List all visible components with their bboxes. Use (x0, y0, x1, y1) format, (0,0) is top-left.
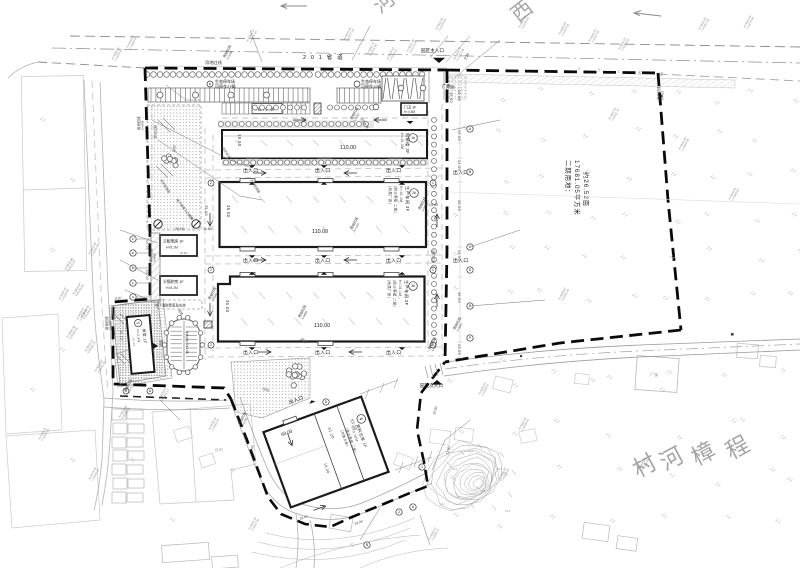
svg-text:X=7916: X=7916 (661, 90, 665, 100)
svg-text:X=2489: X=2489 (109, 320, 113, 330)
svg-text:(丙类厂房): (丙类厂房) (387, 280, 392, 298)
svg-text:出入口: 出入口 (315, 349, 330, 356)
svg-text:15.00: 15.00 (457, 90, 461, 101)
svg-text:2: 2 (398, 510, 400, 514)
svg-text:H≈15.1M: H≈15.1M (398, 280, 402, 297)
svg-text:二期用地：: 二期用地： (564, 160, 573, 196)
svg-text:1: 1 (432, 181, 434, 185)
svg-text:出入口: 出入口 (315, 257, 330, 264)
svg-text:出入口: 出入口 (386, 257, 401, 264)
svg-text:45.2: 45.2 (452, 467, 458, 471)
svg-text:H≈15.3M: H≈15.3M (400, 133, 404, 150)
svg-text:出入口: 出入口 (386, 167, 401, 174)
svg-text:13.00: 13.00 (457, 344, 461, 355)
svg-text:X=9085: X=9085 (153, 252, 157, 262)
svg-text:出入口: 出入口 (315, 167, 330, 174)
svg-text:可停车11辆: 可停车11辆 (361, 83, 381, 89)
svg-text:可停车27辆: 可停车27辆 (215, 83, 235, 89)
svg-text:110.00: 110.00 (340, 145, 356, 151)
svg-text:42.5: 42.5 (505, 509, 511, 513)
svg-text:H≈5.1M: H≈5.1M (166, 246, 178, 250)
svg-text:15.00: 15.00 (457, 130, 461, 141)
svg-text:地下消防泵房及水池: 地下消防泵房及水池 (155, 303, 186, 308)
svg-text:F: F (132, 281, 134, 285)
svg-text:(丙类厂房): (丙类厂房) (388, 186, 393, 204)
svg-text:35.00: 35.00 (457, 292, 461, 303)
svg-text:科研楼 3F: 科研楼 3F (404, 133, 411, 154)
svg-text:⑥锅炉房 1F: ⑥锅炉房 1F (163, 279, 184, 284)
svg-text:(耐火等级 二级): (耐火等级 二级) (394, 186, 399, 213)
svg-text:园路: 园路 (159, 340, 164, 347)
svg-text:生产车间 3F: 生产车间 3F (404, 186, 411, 212)
svg-text:H≈5.1M: H≈5.1M (166, 286, 178, 290)
svg-text:X=9348: X=9348 (141, 120, 145, 130)
svg-text:15.00: 15.00 (449, 92, 453, 103)
svg-text:2: 2 (210, 343, 212, 347)
svg-text:11.80: 11.80 (203, 227, 212, 231)
svg-text:13.00: 13.00 (429, 203, 438, 207)
svg-text:用地红线: 用地红线 (136, 116, 141, 130)
svg-text:1: 1 (432, 268, 434, 272)
svg-text:出入口: 出入口 (243, 257, 258, 264)
svg-text:门卫 1F: 门卫 1F (404, 105, 417, 110)
svg-text:2#: 2# (412, 191, 416, 195)
svg-text:35.00: 35.00 (226, 205, 231, 218)
svg-text:14.00: 14.00 (457, 160, 461, 171)
svg-text:17681.05平方米: 17681.05平方米 (573, 160, 582, 216)
svg-text:用地红线: 用地红线 (104, 316, 109, 330)
svg-text:H≈15.1M: H≈15.1M (399, 186, 403, 203)
svg-text:36.00: 36.00 (119, 330, 123, 341)
svg-text:1: 1 (421, 465, 423, 469)
svg-text:1#: 1# (411, 136, 415, 140)
svg-text:35.00: 35.00 (225, 300, 230, 313)
svg-text:生产车间 3F: 生产车间 3F (403, 280, 410, 306)
svg-text:用地红线: 用地红线 (148, 248, 153, 262)
svg-text:15.00: 15.00 (457, 250, 461, 261)
svg-text:出入口: 出入口 (243, 349, 258, 356)
svg-text:用地红线: 用地红线 (656, 86, 661, 100)
svg-text:110.00: 110.00 (314, 323, 330, 329)
svg-text:出入口: 出入口 (386, 349, 401, 356)
svg-text:非机动车停车12辆: 非机动车停车12辆 (185, 331, 189, 354)
svg-text:2: 2 (210, 268, 212, 272)
svg-text:2: 2 (210, 181, 212, 185)
svg-text:3#: 3# (411, 284, 415, 288)
svg-text:±0.00: ±0.00 (131, 337, 136, 346)
svg-text:43.2: 43.2 (440, 502, 446, 506)
svg-text:±0.00: ±0.00 (180, 251, 187, 255)
svg-text:荒地: 荒地 (214, 446, 223, 453)
svg-text:约26.52亩: 约26.52亩 (582, 172, 591, 207)
svg-text:广场: 广场 (442, 83, 451, 90)
svg-text:47.8: 47.8 (480, 489, 486, 493)
svg-text:消防车道: 消防车道 (431, 250, 436, 264)
svg-text:2 0 1 省 道: 2 0 1 省 道 (303, 53, 344, 61)
svg-text:⑤配电房 1F: ⑤配电房 1F (163, 239, 184, 244)
svg-text:F: F (469, 336, 471, 340)
svg-text:44.6: 44.6 (468, 449, 474, 453)
svg-text:35.00: 35.00 (457, 200, 461, 211)
svg-text:20.00: 20.00 (175, 227, 185, 231)
svg-text:35.00: 35.00 (204, 205, 208, 216)
svg-text:消防车道: 消防车道 (153, 125, 158, 139)
svg-text:H≈4.5M: H≈4.5M (404, 110, 415, 114)
svg-text:用地红线: 用地红线 (205, 59, 223, 66)
svg-text:园区主入口: 园区主入口 (421, 47, 444, 54)
